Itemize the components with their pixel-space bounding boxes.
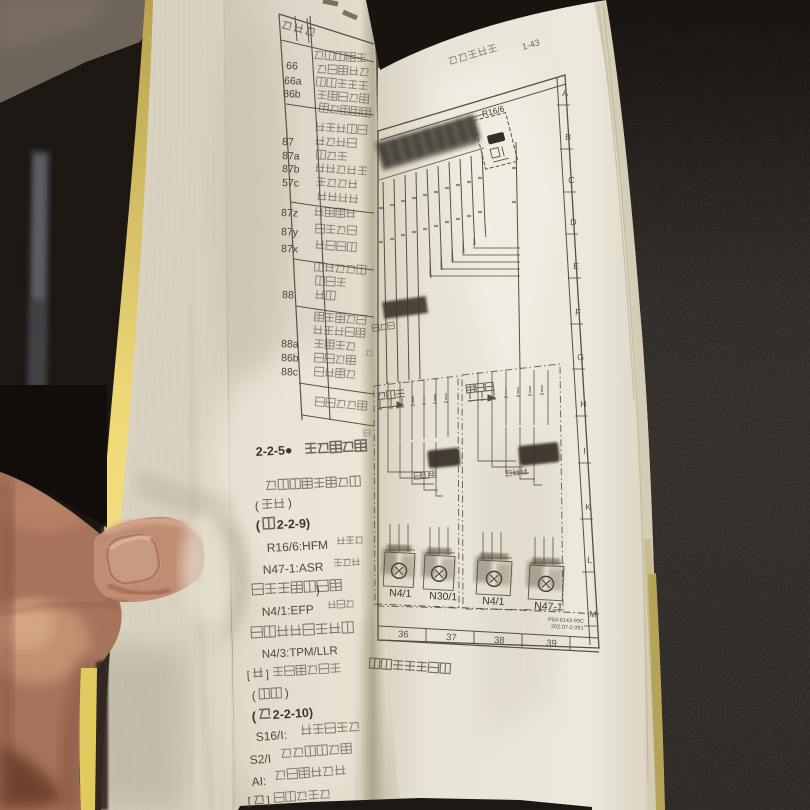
svg-text:F: F — [575, 307, 582, 317]
svg-text:87: 87 — [282, 136, 294, 148]
svg-text:38: 38 — [494, 635, 505, 647]
svg-text:2-2-9): 2-2-9) — [276, 516, 310, 532]
svg-text:36: 36 — [398, 629, 409, 641]
svg-text:87b: 87b — [282, 163, 300, 176]
svg-text:57c: 57c — [282, 177, 299, 190]
svg-text:): ) — [315, 583, 320, 597]
svg-text:AI:: AI: — [251, 774, 267, 789]
svg-text:N4/1:EFP: N4/1:EFP — [261, 602, 314, 619]
svg-text:H: H — [580, 399, 587, 409]
svg-text:2-2-10): 2-2-10) — [272, 706, 313, 722]
svg-text:88: 88 — [282, 289, 294, 301]
svg-text:N47-1: N47-1 — [534, 600, 563, 613]
svg-text:87x: 87x — [281, 243, 299, 256]
svg-text:C: C — [568, 175, 576, 185]
svg-text:37: 37 — [446, 632, 457, 644]
svg-text:I: I — [583, 446, 586, 456]
svg-text:86b: 86b — [281, 352, 299, 365]
svg-text:E: E — [573, 261, 580, 271]
svg-text:D: D — [570, 217, 578, 227]
svg-text:88a: 88a — [281, 338, 299, 351]
svg-text:S2/I: S2/I — [249, 752, 271, 767]
svg-text:87a: 87a — [282, 150, 300, 163]
svg-text:88c: 88c — [281, 366, 298, 379]
svg-text:66a: 66a — [284, 75, 302, 88]
svg-text:87y: 87y — [281, 226, 299, 239]
svg-text:N4/1: N4/1 — [389, 587, 412, 600]
svg-text:(: ( — [255, 499, 260, 513]
svg-text:86b: 86b — [283, 88, 301, 101]
svg-text:B: B — [565, 132, 572, 142]
svg-text:N30/1: N30/1 — [429, 590, 458, 603]
svg-text:2-2-5●: 2-2-5● — [255, 443, 292, 459]
svg-text:N4/1: N4/1 — [482, 595, 505, 608]
svg-text:): ) — [288, 496, 293, 510]
svg-text:(: ( — [251, 689, 256, 703]
svg-text:66: 66 — [286, 60, 298, 72]
svg-text:L: L — [587, 555, 593, 565]
svg-text:S16/I:: S16/I: — [255, 728, 287, 744]
svg-text:): ) — [284, 686, 289, 700]
svg-text:A: A — [562, 88, 569, 98]
svg-text:K: K — [585, 502, 592, 512]
svg-text:39: 39 — [546, 638, 557, 650]
svg-text:87z: 87z — [281, 207, 298, 220]
svg-text:G: G — [577, 352, 585, 362]
